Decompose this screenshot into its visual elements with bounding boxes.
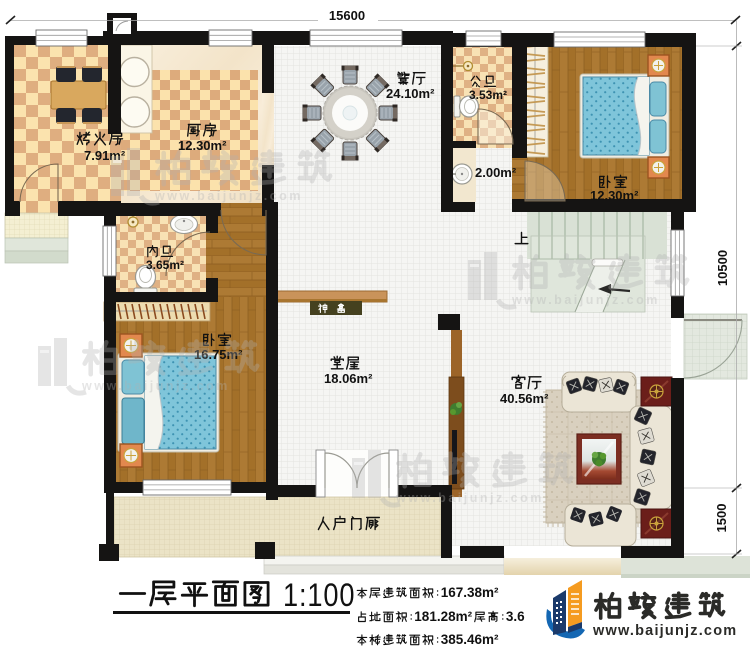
svg-text:www.baijunjz.com: www.baijunjz.com [511, 293, 660, 307]
svg-text:www.baijunjz.com: www.baijunjz.com [592, 623, 737, 639]
svg-text:3.6: 3.6 [506, 609, 525, 624]
svg-text:18.06m²: 18.06m² [324, 371, 373, 386]
svg-text:40.56m²: 40.56m² [500, 391, 549, 406]
svg-text:3.65m²: 3.65m² [146, 258, 184, 272]
svg-text:385.46m²: 385.46m² [441, 632, 499, 647]
svg-text:1:100: 1:100 [283, 578, 355, 614]
svg-text:2.00m²: 2.00m² [475, 165, 517, 180]
svg-text:www.baijunjz.com: www.baijunjz.com [81, 379, 230, 393]
svg-text:www.baijunjz.com: www.baijunjz.com [154, 189, 303, 203]
svg-text:24.10m²: 24.10m² [386, 86, 435, 101]
svg-text:www.baijunjz.com: www.baijunjz.com [395, 491, 544, 505]
svg-text:12.30m²: 12.30m² [590, 188, 639, 203]
svg-text:15600: 15600 [329, 8, 365, 23]
svg-text:1500: 1500 [714, 504, 729, 533]
svg-text:3.53m²: 3.53m² [469, 88, 507, 102]
svg-text:167.38m²: 167.38m² [441, 585, 499, 600]
svg-text:181.28m²: 181.28m² [414, 609, 472, 624]
svg-text:10500: 10500 [715, 250, 730, 286]
svg-text:12.30m²: 12.30m² [178, 138, 227, 153]
